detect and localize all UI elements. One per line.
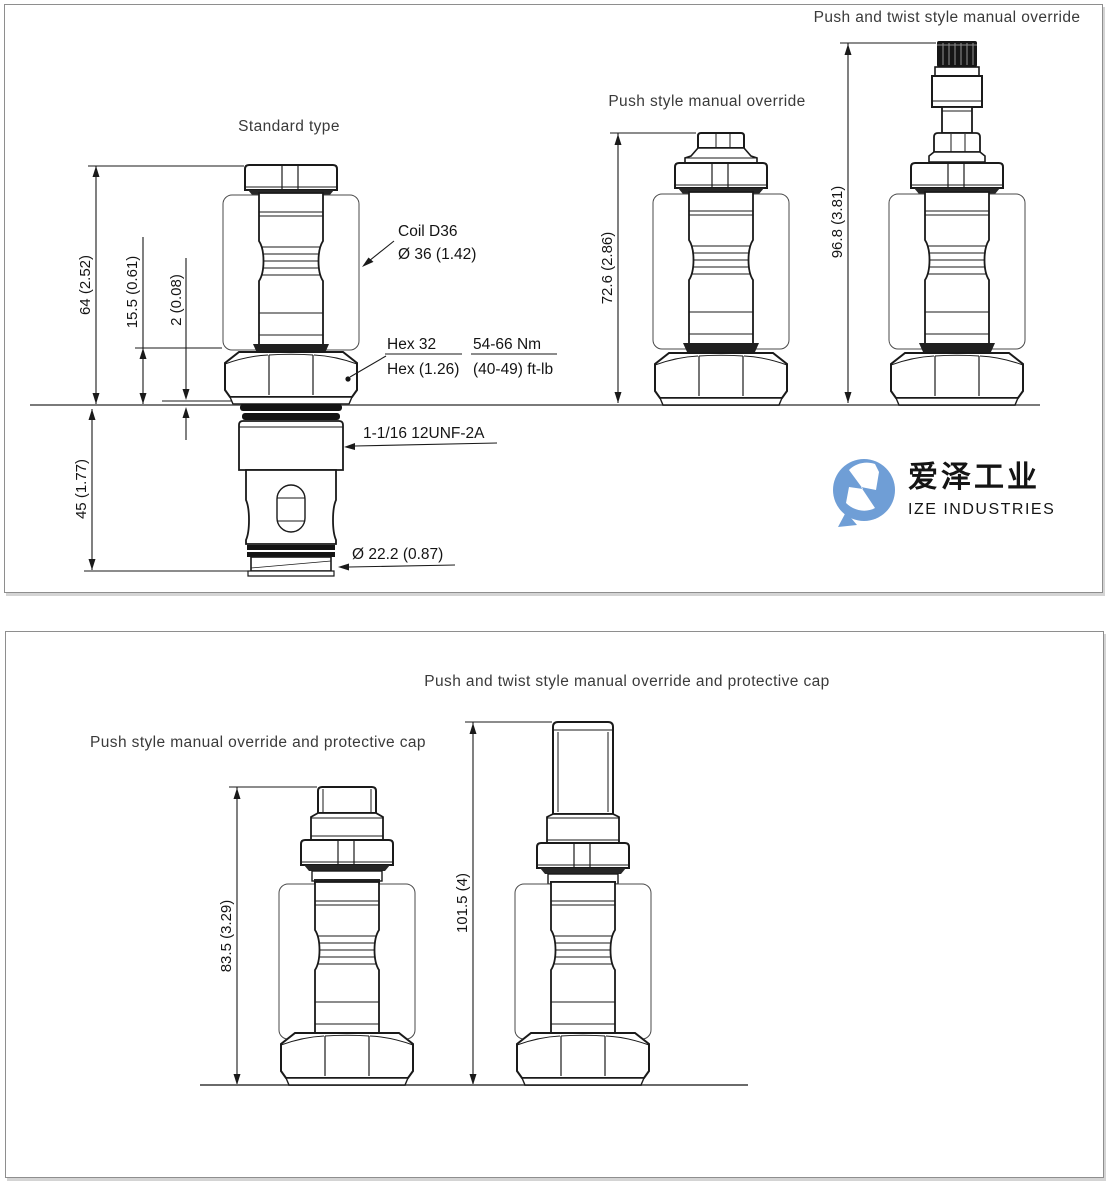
callout-nose-label: Ø 22.2 (0.87) — [352, 546, 443, 563]
dim-label-overall: 64 (2.52) — [77, 255, 94, 315]
callout-hex-line1: Hex 32 — [387, 336, 436, 353]
dim-label-push-twist-overall: 96.8 (3.81) — [829, 186, 846, 259]
top-panel-drawing: 64 (2.52) 15.5 (0.61) 2 (0.08) — [5, 5, 1102, 592]
dimension-drawing-panel-top: 64 (2.52) 15.5 (0.61) 2 (0.08) — [4, 4, 1103, 593]
callout-hex: Hex 32 Hex (1.26) — [345, 336, 462, 382]
datasheet-page: 64 (2.52) 15.5 (0.61) 2 (0.08) — [0, 0, 1109, 1183]
dim-label-push-twist-cap: 101.5 (4) — [454, 873, 471, 933]
callout-thread: 1-1/16 12UNF-2A — [344, 425, 497, 450]
watermark-logo: 爱泽工业 IZE INDUSTRIES — [833, 459, 1055, 527]
dim-overall-64: 64 (2.52) — [77, 166, 244, 404]
title-push-twist-cap: Push and twist style manual override and… — [424, 673, 829, 690]
callout-coil: Coil D36 Ø 36 (1.42) — [362, 223, 476, 267]
callout-thread-label: 1-1/16 12UNF-2A — [363, 425, 485, 442]
dimension-drawing-panel-bottom: 83.5 (3.29) 101.5 (4) — [5, 631, 1104, 1178]
valve-push-override — [653, 133, 789, 405]
watermark-en-text: IZE INDUSTRIES — [908, 501, 1055, 518]
dim-label-push-cap: 83.5 (3.29) — [218, 900, 235, 973]
callout-torque-line2: (40-49) ft-lb — [473, 361, 553, 378]
dim-label-cartridge: 45 (1.77) — [73, 459, 90, 519]
title-push-cap: Push style manual override and protectiv… — [90, 734, 426, 751]
cartridge-lower — [239, 421, 343, 576]
callout-coil-line1: Coil D36 — [398, 223, 457, 240]
watermark-cn-text: 爱泽工业 — [908, 461, 1040, 494]
valve-push-twist-override — [889, 41, 1025, 405]
oring-stack — [240, 404, 342, 420]
valve-push-cap — [279, 787, 415, 1085]
callout-nose-diameter: Ø 22.2 (0.87) — [338, 546, 455, 571]
callout-torque: 54-66 Nm (40-49) ft-lb — [471, 336, 557, 378]
title-push-twist-override: Push and twist style manual override — [814, 9, 1081, 26]
dim-label-push-overall: 72.6 (2.86) — [599, 232, 616, 305]
title-standard-type: Standard type — [238, 118, 340, 135]
valve-standard — [223, 165, 359, 576]
callout-hex-line2: Hex (1.26) — [387, 361, 459, 378]
valve-push-twist-cap — [515, 722, 651, 1085]
dim-label-nut: 15.5 (0.61) — [124, 256, 141, 329]
title-push-override: Push style manual override — [608, 93, 805, 110]
callout-coil-line2: Ø 36 (1.42) — [398, 246, 476, 263]
callout-torque-line1: 54-66 Nm — [473, 336, 541, 353]
bottom-panel-drawing: 83.5 (3.29) 101.5 (4) — [6, 632, 1103, 1177]
dim-label-washer: 2 (0.08) — [168, 274, 185, 326]
dim-cartridge-45: 45 (1.77) — [73, 409, 248, 571]
